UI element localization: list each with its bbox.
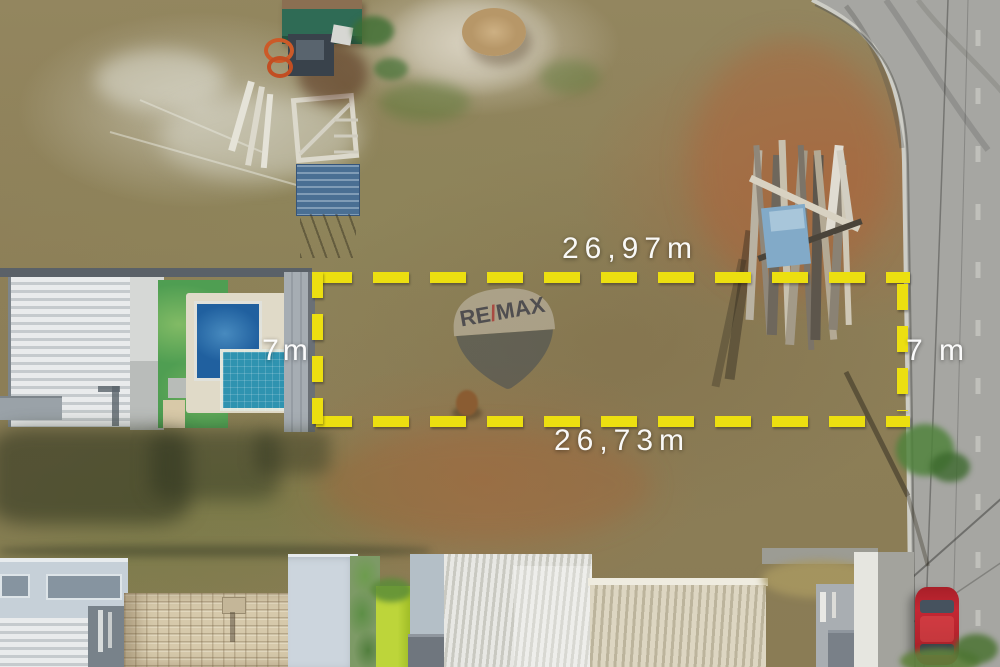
watermark-re: RE: [458, 301, 493, 331]
balloon-bottom: [456, 329, 557, 392]
roof-patio-cutout: [46, 574, 122, 600]
bottom-left-corrugated-roof: [0, 618, 92, 667]
car-windshield: [920, 600, 954, 613]
top-length-label: 26,97m: [500, 232, 760, 266]
equipment-box-top: [296, 40, 324, 60]
house-shadow: [255, 430, 330, 474]
blue-bench: [296, 164, 360, 216]
bush: [352, 16, 394, 46]
corner-foliage: [954, 634, 998, 664]
pipe-shadow: [112, 386, 119, 426]
left-house-slab: [0, 396, 62, 420]
wall-post: [98, 610, 103, 652]
sand-pad: [163, 400, 185, 428]
tree-foliage: [930, 452, 970, 482]
boundary-top: [316, 272, 910, 283]
paving-pad: [168, 378, 188, 398]
gate-post: [820, 592, 826, 622]
roof-patio-cutout: [0, 574, 30, 598]
white-building-edge: [854, 552, 880, 667]
car-roof-highlight: [920, 616, 954, 642]
bench-leg-shadows: [300, 214, 356, 258]
orange-hose-coil: [267, 56, 293, 78]
tile-roof: [124, 593, 290, 667]
left-width-label: 7m: [252, 334, 322, 368]
beige-corrugated-roof: [590, 585, 766, 667]
gate-post: [832, 592, 836, 618]
brown-object: [456, 390, 478, 416]
bush: [374, 58, 408, 80]
vent-shadow: [230, 612, 235, 642]
leaf-overhang: [370, 578, 412, 602]
white-object: [331, 24, 354, 45]
right-width-label: 7 m: [902, 334, 972, 368]
white-corrugated-roof-bright: [514, 566, 592, 667]
mid-flat-roof: [288, 554, 358, 667]
sidewalk: [878, 552, 914, 667]
bottom-length-label: 26,73m: [492, 424, 752, 458]
remax-watermark: RE/MAX: [446, 286, 564, 392]
aerial-photo: RE/MAX 26,97m 26,73m 7m 7 m: [0, 0, 1000, 667]
left-house-ridge: [0, 268, 312, 277]
wall-post: [108, 612, 112, 648]
